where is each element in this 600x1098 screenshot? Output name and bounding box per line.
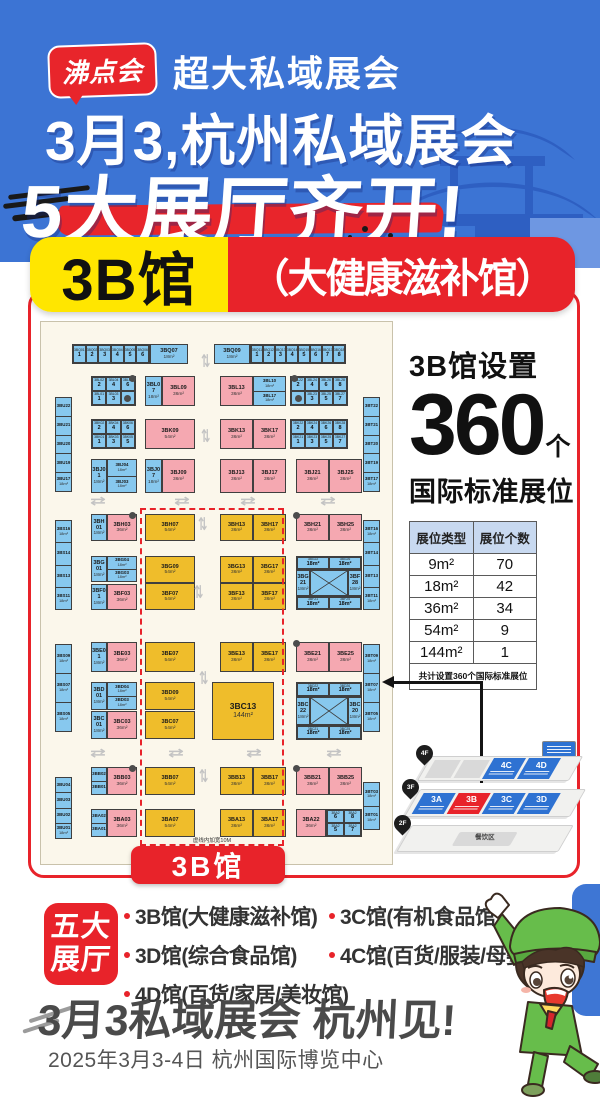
floorplan: 虚线内加宽10M 3BQ0113BQ0223BQ0333BQ0443BQ0553… [40, 321, 393, 865]
booth-cell: 3BK255 [319, 434, 333, 448]
booth-cell: 3BK244 [305, 420, 319, 434]
pillar-dot [293, 640, 300, 647]
booth-3BB21: 3BB2136m² [296, 767, 329, 795]
mascot [476, 870, 600, 1098]
booth-cell: 3BQ133 [275, 345, 287, 363]
booth-3BH25: 3BH2536m² [329, 514, 362, 541]
booth-3BG21: 3BG2118m² [296, 570, 310, 596]
booth-cell: 3BS0518m² [56, 703, 71, 731]
booth-3BE21: 3BE2136m² [296, 642, 329, 672]
booth-cell: 3BU02 [56, 809, 71, 824]
booth-cell: 3BK222 [291, 420, 305, 434]
booth-3BB25: 3BB2536m² [329, 767, 362, 795]
booth-group: 3BS1618m²3BS143BS133BS1118m² [55, 520, 72, 610]
table-cell: 34 [473, 597, 537, 619]
booth-cell: 3BU04 [56, 778, 71, 793]
hall-badge-name: 3B馆 [61, 237, 196, 312]
booth-cell: 3BS1118m² [56, 588, 71, 609]
booth-3BJ25: 3BJ2536m² [329, 459, 362, 493]
booth-3BJ09: 3BJ0936m² [162, 459, 195, 493]
table-footer-note: 共计设置360个国际标准展位 [410, 663, 537, 689]
booth-cell: 3BT21 [364, 417, 379, 436]
booth-cell: 3BT1718m² [364, 473, 379, 491]
pillar-dot [129, 765, 136, 772]
booth-cell: 3BK055 [121, 434, 135, 448]
minimap-floor-2f: 餐饮区 [396, 825, 574, 852]
aisle-arrow-icon: ⇄ [320, 494, 336, 508]
booth-cell: 3BG0418m² [108, 557, 136, 570]
hall-badge-name-section: 3B馆 [30, 237, 228, 312]
booth-cell: 3BC2518m² [329, 726, 361, 739]
five-halls-badge: 五大 展厅 [44, 903, 118, 985]
booth-group: 3BK2223BK2443BK2663BK2883BK2113BK2333BK2… [290, 419, 348, 449]
booth-group: 3BB023BB01 [91, 767, 107, 795]
booth-3BE01: 3BE0118m² [91, 642, 107, 672]
booth-type-table: 展位类型 展位个数 9m²7018m²4236m²3454m²9144m²1 共… [409, 521, 537, 690]
widened-aisle-zone [140, 508, 284, 846]
booth-cell: 3BK066 [121, 420, 135, 434]
header-tagline: 超大私域展会 [173, 45, 401, 97]
booth-group: 3BT1618m²3BT143BT133BT1118m² [363, 520, 380, 610]
booth-cell: 3BL011 [92, 391, 106, 405]
table-row: 9m²70 [410, 553, 537, 575]
booth-cell: 3BQ022 [86, 345, 99, 363]
booth-group: 3BD2218m²3BD2618m² [296, 682, 362, 697]
booth-cell: 3BU03 [56, 793, 71, 808]
booth-cell: 3BC2118m² [297, 726, 329, 739]
stairwell-booth [310, 570, 348, 596]
booth-group: 3BC2118m²3BC2518m² [296, 725, 362, 740]
booth-cell: 3BG2218m² [297, 557, 329, 569]
booth-cell: 3BQ155 [298, 345, 310, 363]
booth-3BL07: 3BL0718m² [145, 376, 162, 406]
pillar-dot [129, 512, 136, 519]
stats-subtitle: 国际标准展位 [409, 470, 569, 509]
table-cell: 9m² [410, 553, 474, 575]
booth-cell: 3BU21 [56, 417, 71, 436]
booth-cell: 3BL033 [106, 391, 120, 405]
booth-cell: 3BQ111 [251, 345, 263, 363]
booth-cell: 3BL044 [106, 377, 120, 391]
booth-cell: 3BQ033 [98, 345, 111, 363]
table-row: 36m²34 [410, 597, 537, 619]
booth-cell: 3BK266 [319, 420, 333, 434]
booth-cell: 3BS1618m² [56, 521, 71, 543]
hall-list-item: 3B馆(大健康滋补馆) [124, 901, 329, 931]
booth-3BE25: 3BE2536m² [329, 642, 362, 672]
booth-cell: 3BS0918m² [56, 645, 71, 674]
booth-cell: 3BK277 [333, 434, 347, 448]
booth-group: 3BQ1113BQ1223BQ1333BQ1443BQ1553BQ1663BQ1… [250, 344, 346, 364]
booth-group: 3BU043BU033BU023BU0118m² [55, 777, 72, 839]
booth-cell: 3BL022 [92, 377, 106, 391]
table-row: 54m²9 [410, 619, 537, 641]
booth-cell: 3BA01 [92, 824, 106, 837]
booth-cell: 3BL1018m² [254, 377, 285, 392]
booth-cell: 3BL233 [305, 391, 319, 405]
minimap-floor-3f: 3A3B3C3D [404, 789, 586, 817]
booth-cell: 3BA26 [327, 810, 344, 823]
booth-cell: 3BB01 [92, 782, 106, 795]
booth-3BC20: 3BC2018m² [348, 697, 362, 725]
aisle-arrow-icon: ⇄ [90, 746, 106, 760]
stats-count: 360 [409, 385, 544, 467]
booth-cell: 3BF2118m² [297, 597, 329, 609]
venue-minimap: 4C4D 3A3B3C3D 餐饮区 4F 3F 2F [376, 733, 576, 868]
booth-cell: 3BK022 [92, 420, 106, 434]
date-venue: 2025年3月3-4日 杭州国际博览中心 [48, 1044, 384, 1074]
booth-group: 3BQ0113BQ0223BQ0333BQ0443BQ0553BQ066 [72, 344, 150, 364]
booth-cell: 3BT14 [364, 543, 379, 565]
booth-3BF01: 3BF0118m² [91, 584, 107, 610]
booth-cell: 3BT0518m² [364, 703, 379, 731]
hall-list-text: 3D馆(综合食品馆) [135, 940, 297, 970]
booth-cell: 3BJ0418m² [108, 460, 136, 477]
booth-cell: 3BQ144 [286, 345, 298, 363]
brand-logo: 沸点会 [47, 42, 158, 99]
booth-cell: 3BL288 [333, 377, 347, 391]
booth-cell: 3BA25 [327, 823, 344, 836]
booth-cell: 3BK011 [92, 434, 106, 448]
booth-3BQ09: 3BQ0918m² [214, 344, 250, 364]
booth-cell: 3BD0318m² [108, 697, 136, 710]
floorplan-card: 虚线内加宽10M 3BQ0113BQ0223BQ0333BQ0443BQ0553… [28, 290, 580, 878]
booth-3BC03: 3BC0336m² [107, 711, 137, 739]
booth-3BJ21: 3BJ2136m² [296, 459, 329, 493]
aisle-arrow-icon: ⇅ [201, 351, 210, 372]
booth-group: 3BA263BA283BA253BA27 [326, 809, 362, 837]
booth-group: 3BF2118m²3BF2518m² [296, 596, 362, 610]
booth-cell: 3BL277 [333, 391, 347, 405]
five-halls-badge-line2: 展厅 [50, 944, 113, 977]
booth-group: 3BG0418m²3BG0318m² [107, 556, 137, 582]
table-cell: 1 [473, 641, 537, 663]
minimap-hall-餐饮区: 餐饮区 [452, 832, 518, 846]
booth-3BQ07: 3BQ0718m² [150, 344, 188, 364]
booth-cell: 3BL1718m² [254, 392, 285, 406]
bullet-icon [329, 952, 335, 958]
booth-cell: 3BL266 [319, 377, 333, 391]
hall-badge-subtitle-section: （大健康滋补馆） [228, 237, 575, 312]
booth-3BH01: 3BH0118m² [91, 514, 107, 541]
booth-cell: 3BJ0318m² [108, 477, 136, 493]
table-cell: 54m² [410, 619, 474, 641]
booth-3BC22: 3BC2218m² [296, 697, 310, 725]
booth-group: 3BJ0418m²3BJ0318m² [107, 459, 137, 493]
table-header-count: 展位个数 [473, 521, 537, 553]
booth-cell: 3BT0918m² [364, 645, 379, 674]
booth-cell: 3BU20 [56, 436, 71, 455]
booth-cell: 3BQ055 [124, 345, 137, 363]
booth-3BF28: 3BF2818m² [348, 570, 362, 596]
five-halls-badge-line1: 五大 [50, 911, 113, 944]
pillar-dot [293, 512, 300, 519]
table-cell: 36m² [410, 597, 474, 619]
booth-cell: 3BQ177 [322, 345, 334, 363]
cta-title: 3月3私域展会 杭州见! [36, 986, 457, 1048]
table-row: 144m²1 [410, 641, 537, 663]
minimap-floor-4f: 4C4D [417, 756, 583, 781]
booth-cell: 3BS13 [56, 566, 71, 588]
booth-3BE03: 3BE0336m² [107, 642, 137, 672]
pillar-dot [129, 375, 136, 382]
aisle-arrow-icon: ⇄ [90, 494, 106, 508]
bullet-icon [124, 913, 130, 919]
booth-group: 3BG2218m²3BG2618m² [296, 556, 362, 570]
booth-cell: 3BD2618m² [329, 683, 361, 696]
booth-cell: 3BT22 [364, 398, 379, 417]
booth-3BJ07: 3BJ0718m² [145, 459, 162, 493]
booth-cell: 3BQ122 [263, 345, 275, 363]
booth-cell: 3BT13 [364, 566, 379, 588]
table-cell: 144m² [410, 641, 474, 663]
booth-group: 3BA023BA01 [91, 809, 107, 837]
hall-list-text: 3B馆(大健康滋补馆) [135, 901, 317, 931]
booth-cell: 3BQ066 [136, 345, 149, 363]
booth-3BL09: 3BL0936m² [162, 376, 195, 406]
booth-cell: 3BQ188 [333, 345, 345, 363]
table-cell: 18m² [410, 575, 474, 597]
booth-3BJ01: 3BJ0118m² [91, 459, 107, 493]
booth-cell: 3BU1718m² [56, 473, 71, 491]
booth-cell: 3BG0318m² [108, 570, 136, 582]
booth-group: 3BD0418m²3BD0318m² [107, 682, 137, 710]
booth-cell: 3BQ011 [73, 345, 86, 363]
booth-cell: 3BU0118m² [56, 824, 71, 838]
booth-cell: 3BD0418m² [108, 683, 136, 697]
booth-group: 3BL1018m²3BL1718m² [253, 376, 286, 406]
booth-3BA22: 3BA2236m² [296, 809, 326, 837]
aisle-arrow-icon: ⇄ [174, 494, 190, 508]
booth-cell: 3BK288 [333, 420, 347, 434]
booth-cell: 3BT1118m² [364, 588, 379, 609]
booth-3BH21: 3BH2136m² [296, 514, 329, 541]
booth-3BG01: 3BG0118m² [91, 556, 107, 582]
table-cell: 70 [473, 553, 537, 575]
stats-count-unit: 个 [546, 427, 571, 463]
booth-cell: 3BK211 [291, 434, 305, 448]
table-row: 18m²42 [410, 575, 537, 597]
booth-group: 3BL2223BL2443BL2663BL2883BL2333BL2553BL2… [290, 376, 348, 406]
booth-3BK17: 3BK1736m² [253, 419, 286, 449]
stats-panel: 3B馆设置 360 个 国际标准展位 展位类型 展位个数 9m²7018m²42… [409, 343, 569, 690]
hall-badge-subtitle: （大健康滋补馆） [250, 246, 554, 304]
booth-cell: 3BT0718m² [364, 674, 379, 703]
booth-cell: 3BL244 [305, 377, 319, 391]
hall-list-item: 3D馆(综合食品馆) [124, 940, 329, 970]
booth-cell: 3BU22 [56, 398, 71, 417]
arrow-line [393, 681, 483, 684]
table-cell: 9 [473, 619, 537, 641]
booth-group: 3BS0918m²3BS0718m²3BS0518m² [55, 644, 72, 732]
hall-badge: 3B馆 （大健康滋补馆） [30, 237, 575, 312]
floorplan-hall-label: 3B馆 [131, 846, 285, 884]
pillar-dot [293, 765, 300, 772]
booth-3BL13: 3BL1336m² [220, 376, 253, 406]
booth-group: 3BU223BU213BU203BU193BU1718m² [55, 397, 72, 492]
booth-3BK09: 3BK0954m² [145, 419, 195, 449]
booth-cell: 3BB02 [92, 768, 106, 782]
booth-cell: 3BT1618m² [364, 521, 379, 543]
booth-cell: 3BK044 [106, 420, 120, 434]
aisle-arrow-icon: ⇅ [201, 426, 210, 447]
aisle-arrow-icon: ⇄ [326, 746, 342, 760]
bullet-icon [124, 952, 130, 958]
booth-group: 3BT223BT213BT203BT193BT1718m² [363, 397, 380, 492]
stairwell-booth [310, 697, 348, 725]
booth-3BF03: 3BF0336m² [107, 584, 137, 610]
booth-cell: 3BA28 [344, 810, 361, 823]
poster-page: 沸点会 超大私域展会 3月3,杭州私域展会 5大展厅齐开! 3B馆 （大健康滋补… [0, 0, 600, 1098]
booth-group: 3BT0918m²3BT0718m²3BT0518m² [363, 644, 380, 732]
booth-cell: 3BA27 [344, 823, 361, 836]
brand-logo-text: 沸点会 [62, 56, 144, 89]
bullet-icon [329, 913, 335, 919]
booth-3BD01: 3BD0118m² [91, 682, 107, 710]
booth-cell: 3BU19 [56, 454, 71, 473]
booth-cell: 3BQ044 [111, 345, 124, 363]
table-header-type: 展位类型 [410, 521, 474, 553]
booth-cell: 3BT19 [364, 454, 379, 473]
booth-cell: 3BS0718m² [56, 674, 71, 703]
booth-cell: 3BK033 [106, 434, 120, 448]
aisle-arrow-icon: ⇄ [240, 494, 256, 508]
booth-cell: 3BT20 [364, 436, 379, 455]
booth-3BJ17: 3BJ1736m² [253, 459, 286, 493]
booth-cell: 3BD2218m² [297, 683, 329, 696]
booth-group: 3BK0223BK0443BK0663BK0113BK0333BK055 [91, 419, 136, 449]
booth-3BK13: 3BK1336m² [220, 419, 253, 449]
booth-cell: 3BQ166 [310, 345, 322, 363]
booth-cell [291, 391, 305, 405]
booth-cell: 3BL255 [319, 391, 333, 405]
booth-cell: 3BS14 [56, 543, 71, 565]
booth-cell: 3BK233 [305, 434, 319, 448]
booth-3BC01: 3BC0118m² [91, 711, 107, 739]
booth-cell: 3BG2618m² [329, 557, 361, 569]
booth-3BA03: 3BA0336m² [107, 809, 137, 837]
booth-cell [121, 391, 135, 405]
booth-cell: 3BA02 [92, 810, 106, 824]
booth-cell: 3BF2518m² [329, 597, 361, 609]
booth-3BJ13: 3BJ1336m² [220, 459, 253, 493]
table-cell: 42 [473, 575, 537, 597]
pillar-dot [291, 375, 298, 382]
